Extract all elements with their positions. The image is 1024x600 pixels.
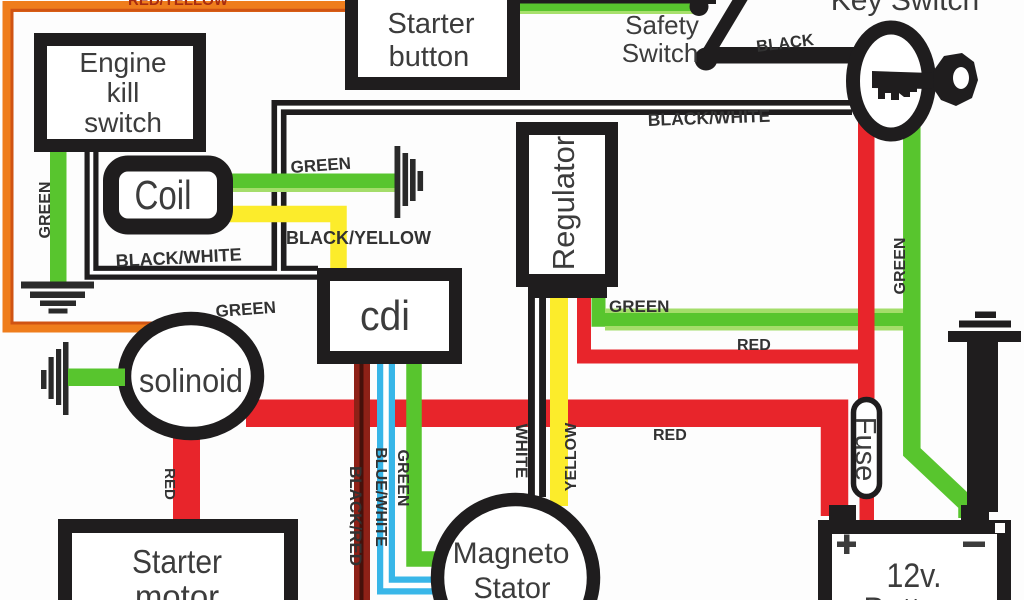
svg-text:BLACK/WHITE: BLACK/WHITE [647, 106, 770, 130]
svg-text:RED: RED [737, 337, 771, 354]
svg-text:Regulator: Regulator [546, 136, 581, 270]
svg-text:solinoid: solinoid [139, 362, 243, 399]
svg-text:button: button [389, 41, 470, 73]
svg-text:Starter: Starter [387, 8, 474, 40]
svg-text:12v.: 12v. [887, 557, 942, 595]
svg-text:YELLOW: YELLOW [563, 422, 580, 491]
svg-text:cdi: cdi [360, 292, 410, 339]
svg-text:Fuse: Fuse [849, 417, 881, 481]
svg-text:Engine: Engine [79, 47, 166, 78]
svg-text:GREEN: GREEN [892, 238, 909, 295]
svg-text:GREEN: GREEN [394, 450, 411, 507]
svg-text:Safety: Safety [625, 10, 699, 40]
svg-text:Magneto: Magneto [453, 537, 570, 570]
svg-text:GREEN: GREEN [37, 182, 54, 239]
svg-text:Switch: Switch [622, 38, 699, 68]
svg-text:Stator: Stator [474, 572, 551, 600]
svg-text:WHITE: WHITE [512, 424, 531, 479]
svg-text:Starter: Starter [132, 543, 222, 580]
svg-text:BLACK/RED: BLACK/RED [346, 466, 365, 566]
svg-text:RED/YELLOW: RED/YELLOW [128, 0, 229, 9]
svg-text:motor: motor [135, 578, 219, 600]
svg-text:GREEN: GREEN [609, 297, 669, 316]
svg-text:RED: RED [653, 427, 687, 444]
svg-text:RED: RED [161, 468, 178, 500]
svg-text:BLUE/WHITE: BLUE/WHITE [372, 447, 389, 547]
svg-text:Coil: Coil [135, 172, 192, 218]
svg-text:switch: switch [84, 107, 162, 138]
svg-text:Battery: Battery [863, 591, 964, 600]
svg-text:BLACK/YELLOW: BLACK/YELLOW [286, 228, 431, 248]
svg-text:Key Switch: Key Switch [831, 0, 979, 17]
svg-text:kill: kill [107, 77, 140, 108]
